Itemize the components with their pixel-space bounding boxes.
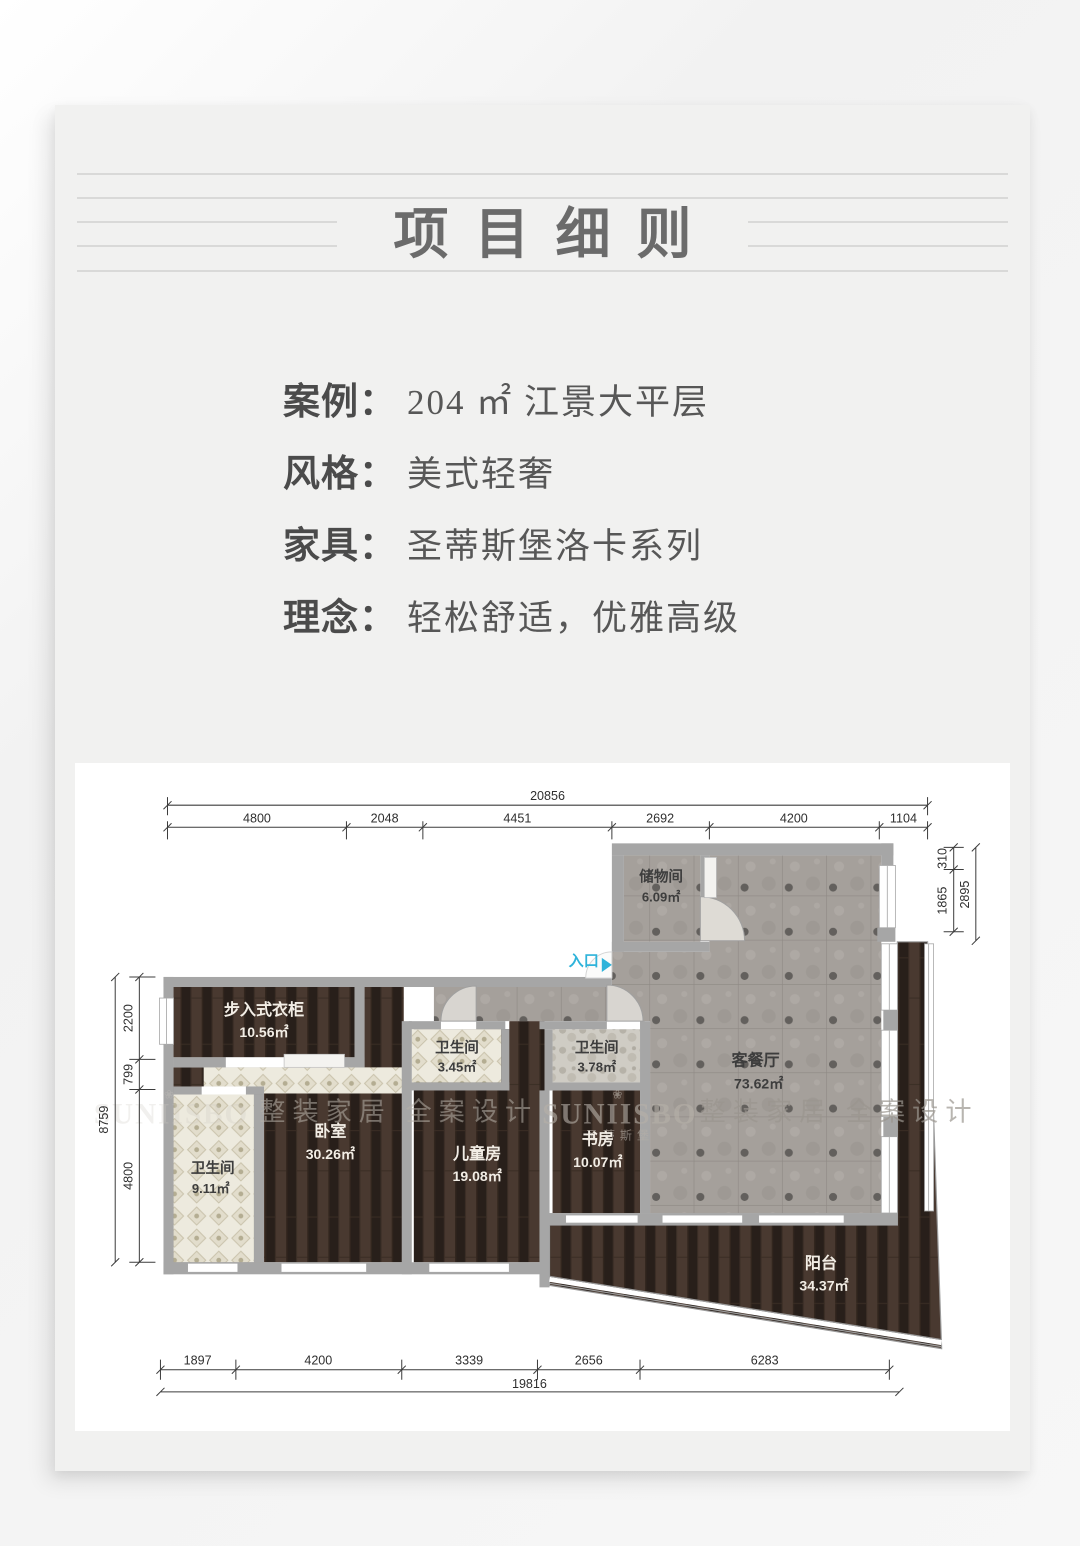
detail-label: 理念： [283, 587, 397, 641]
svg-text:步入式衣柜: 步入式衣柜 [224, 1000, 304, 1019]
door-leaf [704, 857, 716, 897]
detail-value: 204 ㎡ 江景大平层 [407, 374, 709, 425]
dim-bottom-total: 19816 [512, 1377, 547, 1391]
detail-label: 案例： [283, 371, 397, 425]
detail-value: 美式轻奢 [407, 446, 555, 497]
dim-top-seg: 1104 [890, 811, 917, 825]
dim-left-seg: 2200 [121, 1004, 135, 1032]
svg-text:书房: 书房 [582, 1130, 614, 1149]
project-details: 案例： 204 ㎡ 江景大平层 风格： 美式轻奢 家具： 圣蒂斯堡洛卡系列 理念… [283, 371, 740, 659]
detail-row-concept: 理念： 轻松舒适，优雅高级 [283, 587, 740, 631]
svg-text:卫生间: 卫生间 [435, 1038, 479, 1056]
detail-label: 家具： [283, 515, 397, 569]
door-leaf [284, 1054, 344, 1067]
floorplan-svg: 整装家居 全案设计 整装家居 全案设计 ❀ SUNIISBO 圣蒂斯堡 ❀ SU… [75, 763, 1010, 1431]
content-panel: 项目细则 案例： 204 ㎡ 江景大平层 风格： 美式轻奢 家具： 圣蒂斯堡洛卡… [55, 105, 1030, 1471]
svg-text:入口: 入口 [569, 953, 599, 970]
svg-text:30.26㎡: 30.26㎡ [306, 1146, 355, 1162]
dim-right-seg: 2895 [958, 881, 972, 909]
detail-value: 圣蒂斯堡洛卡系列 [407, 518, 703, 569]
svg-text:储物间: 储物间 [639, 868, 683, 886]
svg-text:客餐厅: 客餐厅 [732, 1050, 780, 1069]
dim-top-seg: 4800 [243, 811, 271, 825]
dim-top-seg: 4451 [503, 811, 531, 825]
floorplan-card: 整装家居 全案设计 整装家居 全案设计 ❀ SUNIISBO 圣蒂斯堡 ❀ SU… [75, 763, 1010, 1431]
svg-text:3.78㎡: 3.78㎡ [578, 1059, 616, 1074]
dim-bottom-seg: 2656 [575, 1354, 603, 1368]
svg-text:卧室: 卧室 [314, 1122, 346, 1141]
detail-value: 轻松舒适，优雅高级 [407, 590, 740, 641]
dim-left-seg: 4800 [121, 1162, 135, 1190]
detail-label: 风格： [283, 443, 397, 497]
divider-line [77, 270, 1008, 272]
dim-top-seg: 4200 [780, 811, 808, 825]
bedroom-floor [365, 987, 404, 1072]
svg-text:儿童房: 儿童房 [452, 1144, 501, 1163]
detail-row-furniture: 家具： 圣蒂斯堡洛卡系列 [283, 515, 740, 559]
corridor-floor [509, 1021, 544, 1090]
dim-right-seg: 310 [936, 848, 950, 869]
svg-text:73.62㎡: 73.62㎡ [734, 1075, 783, 1091]
dim-bottom-seg: 3339 [455, 1354, 483, 1368]
watermark-slogan-right: 整装家居 全案设计 [700, 1098, 979, 1127]
svg-text:10.07㎡: 10.07㎡ [573, 1154, 622, 1170]
svg-text:34.37㎡: 34.37㎡ [799, 1277, 848, 1293]
dim-top-seg: 2048 [371, 811, 399, 825]
svg-text:10.56㎡: 10.56㎡ [239, 1024, 288, 1040]
divider-line [77, 173, 1008, 175]
detail-row-case: 案例： 204 ㎡ 江景大平层 [283, 371, 740, 415]
dim-left-seg: 799 [121, 1064, 135, 1085]
watermark-slogan-left: 整装家居 全案设计 [259, 1098, 538, 1127]
dim-bottom-seg: 1897 [184, 1354, 212, 1368]
dim-top-total: 20856 [530, 789, 565, 803]
closet-floor [174, 987, 355, 1057]
dim-left-total: 8759 [97, 1106, 111, 1134]
svg-text:卫生间: 卫生间 [191, 1159, 235, 1177]
svg-text:19.08㎡: 19.08㎡ [453, 1168, 502, 1184]
page-title: 项目细则 [55, 189, 1030, 269]
watermark-brand: SUNIISBO [542, 1099, 697, 1131]
svg-text:阳台: 阳台 [805, 1253, 837, 1272]
detail-row-style: 风格： 美式轻奢 [283, 443, 740, 487]
dim-bottom-seg: 4200 [304, 1354, 332, 1368]
svg-text:9.11㎡: 9.11㎡ [192, 1181, 230, 1196]
svg-text:3.45㎡: 3.45㎡ [438, 1059, 476, 1074]
svg-text:6.09㎡: 6.09㎡ [642, 890, 680, 905]
dim-top-seg: 2692 [646, 811, 674, 825]
dim-right-seg: 1865 [936, 887, 950, 915]
svg-text:卫生间: 卫生间 [575, 1038, 619, 1056]
watermark-brand: SUNIISBO [94, 1099, 249, 1131]
dim-bottom-seg: 6283 [751, 1354, 779, 1368]
